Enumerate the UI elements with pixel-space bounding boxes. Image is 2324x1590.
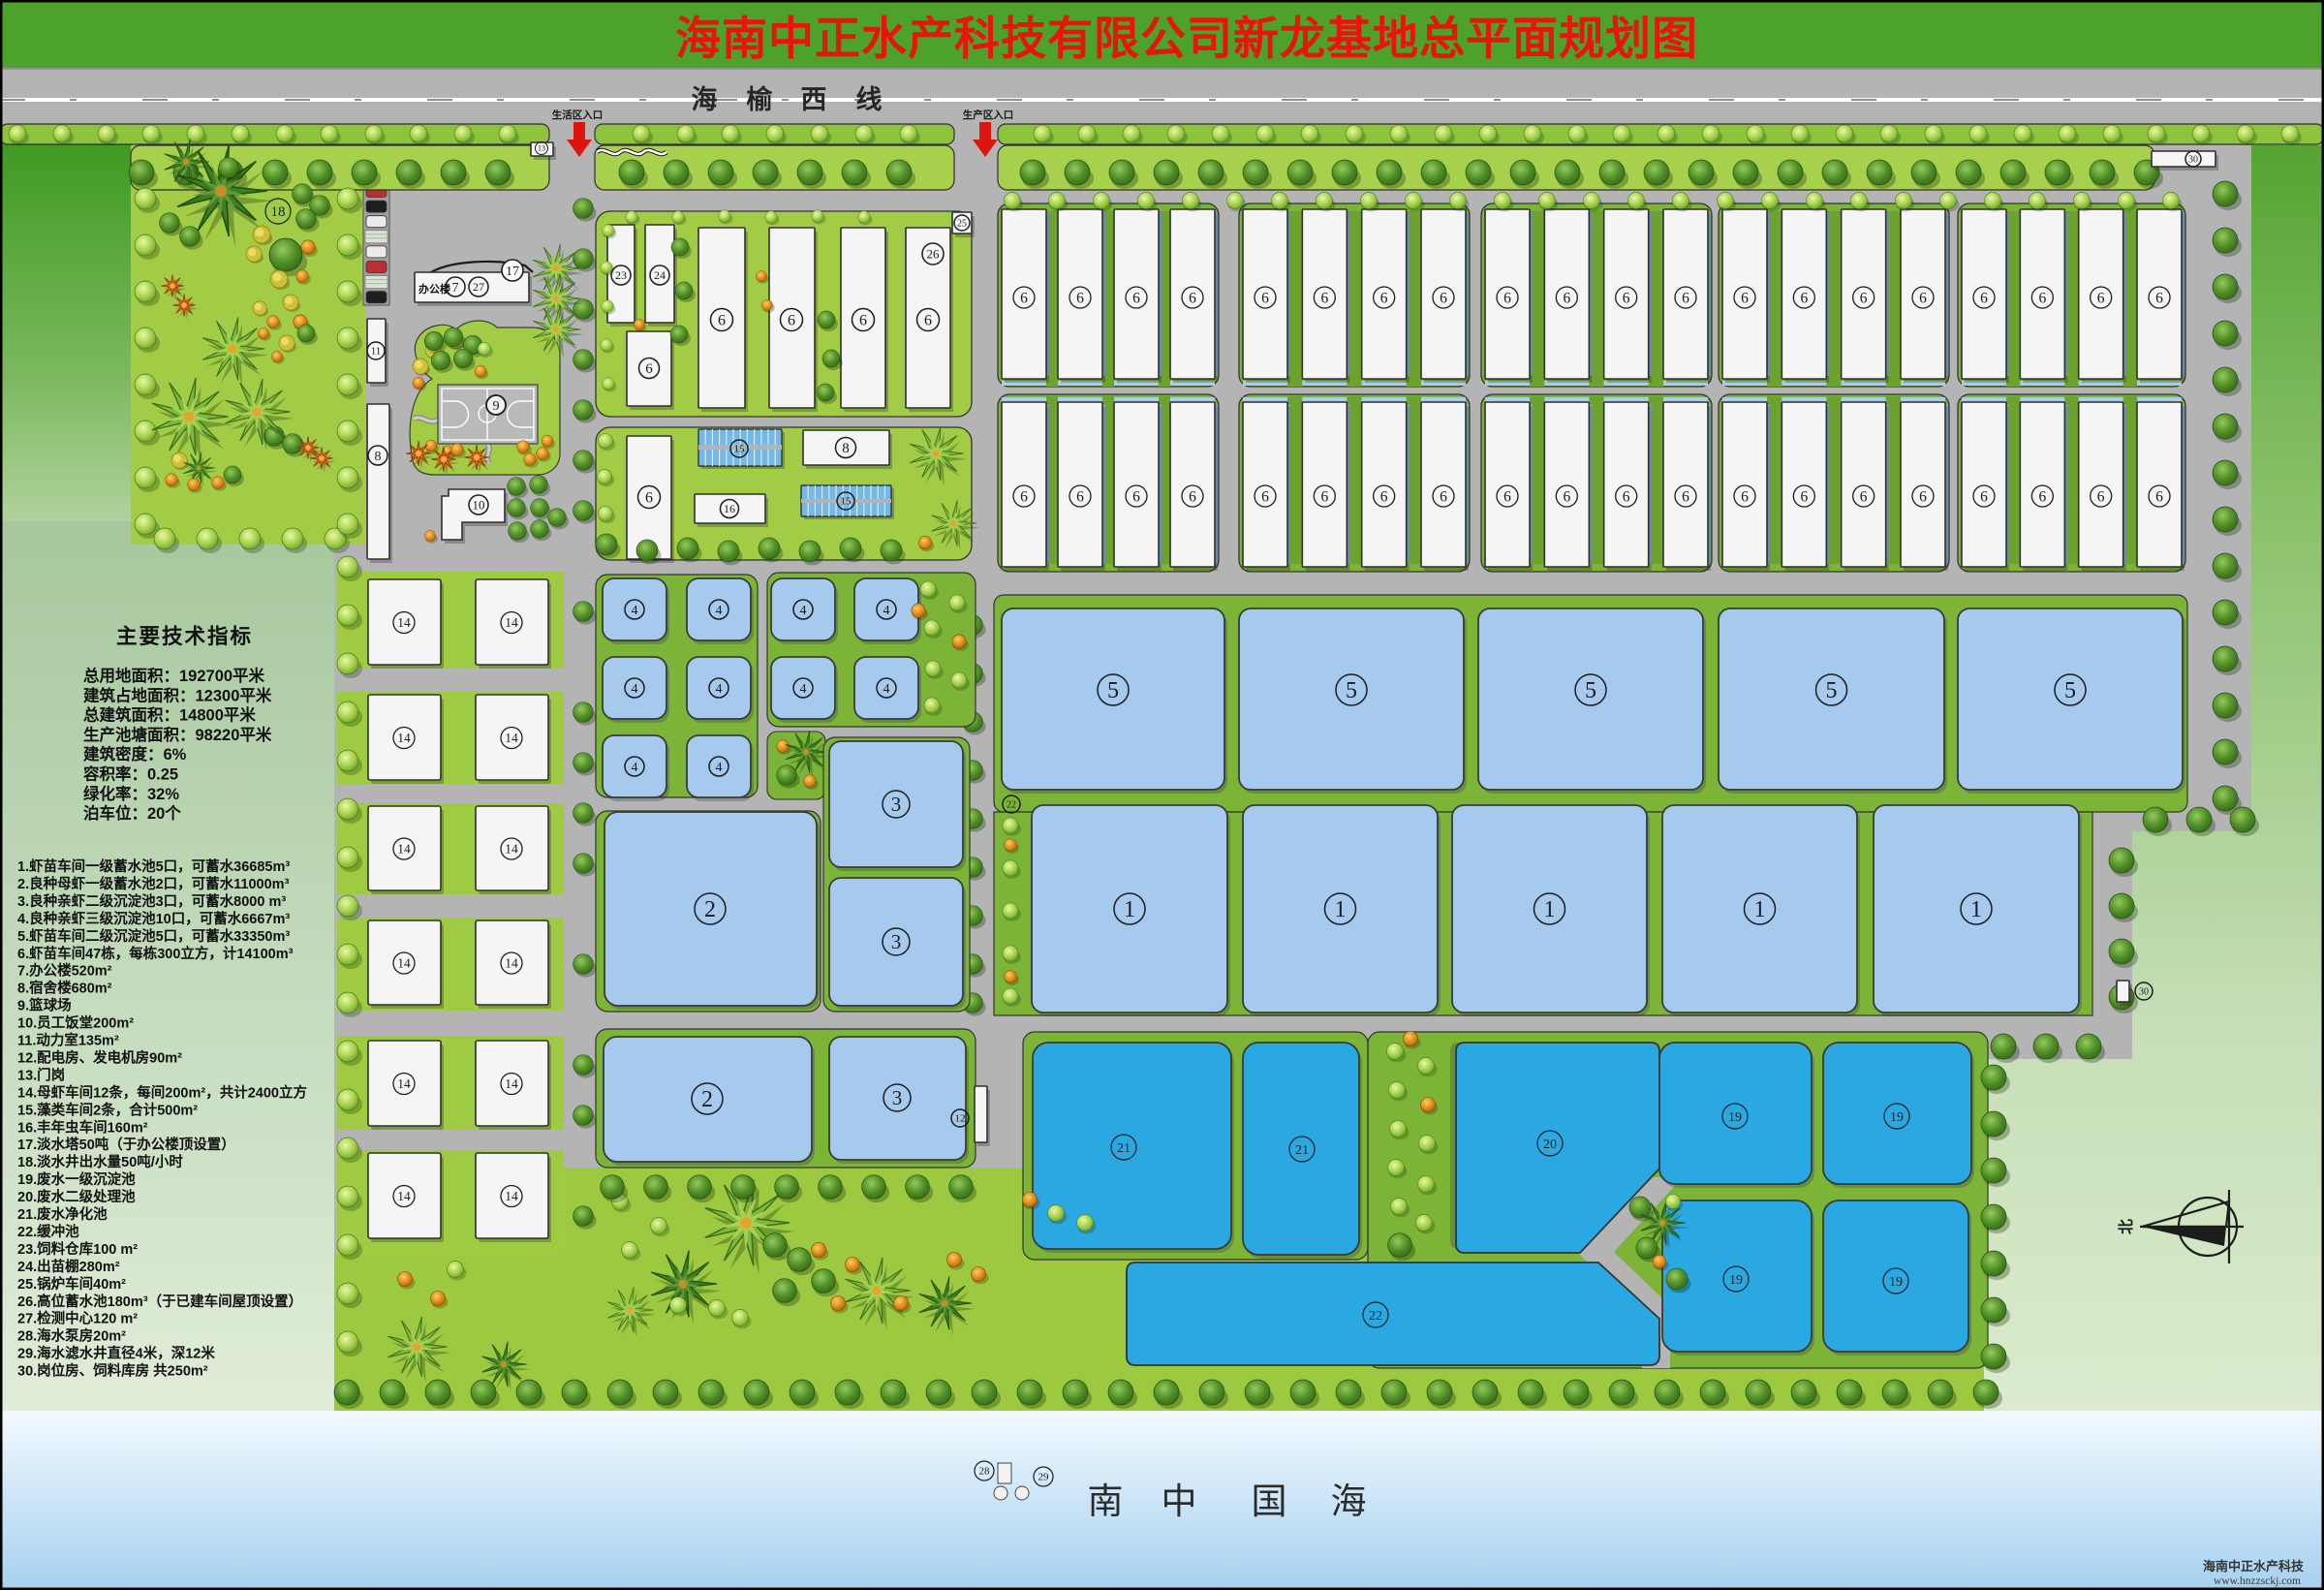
svg-text:23: 23 xyxy=(615,268,627,282)
svg-text:6: 6 xyxy=(1741,488,1749,505)
svg-text:5: 5 xyxy=(1107,678,1119,703)
svg-text:16: 16 xyxy=(724,502,735,515)
svg-text:6: 6 xyxy=(1682,290,1689,306)
svg-text:14: 14 xyxy=(397,615,411,630)
svg-text:5: 5 xyxy=(1585,678,1596,703)
svg-text:6: 6 xyxy=(1189,290,1196,306)
svg-text:14: 14 xyxy=(397,731,411,745)
svg-text:6: 6 xyxy=(1623,290,1630,306)
svg-text:25.锅炉车间40m²: 25.锅炉车间40m² xyxy=(17,1275,126,1293)
svg-text:23.饲料仓库100 m²: 23.饲料仓库100 m² xyxy=(17,1240,138,1258)
svg-text:14: 14 xyxy=(505,731,518,745)
svg-text:生活区入口: 生活区入口 xyxy=(552,109,604,121)
svg-text:6: 6 xyxy=(645,361,653,377)
svg-text:6: 6 xyxy=(1563,488,1570,505)
svg-text:4: 4 xyxy=(632,682,638,697)
svg-text:4: 4 xyxy=(800,604,807,618)
svg-text:2.良种母虾一级蓄水池2口，可蓄水11000m³: 2.良种母虾一级蓄水池2口，可蓄水11000m³ xyxy=(17,875,290,892)
svg-text:1: 1 xyxy=(1754,897,1766,922)
svg-text:5.虾苗车间二级沉淀池5口，可蓄水33350m³: 5.虾苗车间二级沉淀池5口，可蓄水33350m³ xyxy=(17,927,290,945)
svg-text:建筑占地面积：12300平米: 建筑占地面积：12300平米 xyxy=(83,685,272,704)
svg-text:28.海水泵房20m²: 28.海水泵房20m² xyxy=(17,1327,126,1345)
svg-text:6: 6 xyxy=(1440,488,1447,505)
svg-text:15: 15 xyxy=(841,496,852,508)
svg-text:6: 6 xyxy=(1919,290,1927,306)
svg-text:12.配电房、发电机房90m²: 12.配电房、发电机房90m² xyxy=(17,1048,182,1066)
svg-text:国: 国 xyxy=(1252,1482,1287,1522)
svg-text:6: 6 xyxy=(1076,290,1084,306)
svg-text:总建筑面积：14800平米: 总建筑面积：14800平米 xyxy=(83,705,256,725)
svg-text:11: 11 xyxy=(371,346,382,358)
svg-text:5: 5 xyxy=(2064,678,2076,703)
svg-text:6: 6 xyxy=(1076,488,1084,505)
svg-text:3: 3 xyxy=(891,930,902,953)
svg-text:3: 3 xyxy=(891,793,902,816)
svg-text:6: 6 xyxy=(1563,290,1570,306)
svg-text:总用地面积：192700平米: 总用地面积：192700平米 xyxy=(83,666,265,685)
svg-text:11.动力室135m²: 11.动力室135m² xyxy=(17,1032,119,1049)
svg-text:12: 12 xyxy=(955,1113,966,1125)
svg-text:生产池塘面积：98220平米: 生产池塘面积：98220平米 xyxy=(83,725,272,744)
svg-text:www.hnzzsckj.com: www.hnzzsckj.com xyxy=(2214,1575,2301,1587)
svg-text:9.篮球场: 9.篮球场 xyxy=(17,997,72,1014)
svg-text:6: 6 xyxy=(1800,488,1808,505)
svg-text:6: 6 xyxy=(1503,290,1511,306)
svg-text:14: 14 xyxy=(505,956,518,971)
svg-text:17: 17 xyxy=(506,265,519,279)
svg-text:6: 6 xyxy=(1132,290,1140,306)
svg-text:6: 6 xyxy=(1860,488,1868,505)
svg-text:29: 29 xyxy=(1038,1472,1050,1483)
svg-text:13.门岗: 13.门岗 xyxy=(17,1066,65,1083)
svg-text:30.岗位房、饲料库房 共250m²: 30.岗位房、饲料库房 共250m² xyxy=(17,1362,208,1380)
svg-text:6.虾苗车间47栋，每栋300立方，计14100m³: 6.虾苗车间47栋，每栋300立方，计14100m³ xyxy=(17,945,294,962)
svg-text:8: 8 xyxy=(842,441,850,456)
svg-text:30: 30 xyxy=(2188,154,2198,165)
svg-text:6: 6 xyxy=(1623,488,1630,505)
svg-text:19: 19 xyxy=(1728,1110,1742,1125)
svg-text:6: 6 xyxy=(1380,488,1388,505)
svg-text:10: 10 xyxy=(473,497,485,512)
svg-text:17.淡水塔50吨（于办公楼顶设置）: 17.淡水塔50吨（于办公楼顶设置） xyxy=(17,1136,235,1153)
svg-text:海南中正水产科技: 海南中正水产科技 xyxy=(2203,1559,2305,1574)
svg-text:6: 6 xyxy=(645,489,653,506)
svg-text:南: 南 xyxy=(1088,1482,1124,1522)
svg-text:27: 27 xyxy=(473,280,484,294)
svg-text:18.淡水井出水量50吨/小时: 18.淡水井出水量50吨/小时 xyxy=(17,1153,183,1170)
svg-text:海: 海 xyxy=(692,85,718,114)
svg-text:14.母虾车间12条，每间200m²，共计2400立方: 14.母虾车间12条，每间200m²，共计2400立方 xyxy=(17,1083,307,1101)
svg-text:6: 6 xyxy=(2038,290,2046,306)
svg-text:21: 21 xyxy=(1117,1141,1131,1156)
svg-text:中: 中 xyxy=(1162,1482,1197,1522)
svg-text:25: 25 xyxy=(957,218,967,229)
svg-text:北: 北 xyxy=(2118,1219,2135,1234)
svg-text:主要技术指标: 主要技术指标 xyxy=(116,624,253,648)
svg-text:6: 6 xyxy=(1261,290,1269,306)
svg-text:18: 18 xyxy=(271,204,286,220)
svg-text:6: 6 xyxy=(2155,488,2163,505)
svg-text:22.缓冲池: 22.缓冲池 xyxy=(17,1223,79,1240)
svg-text:6: 6 xyxy=(1189,488,1196,505)
svg-text:21: 21 xyxy=(1295,1143,1309,1158)
svg-text:6: 6 xyxy=(718,312,726,328)
svg-text:绿化率：32%: 绿化率：32% xyxy=(83,784,179,803)
svg-text:24: 24 xyxy=(654,268,666,282)
svg-text:5: 5 xyxy=(1346,678,1357,703)
svg-text:6: 6 xyxy=(1320,488,1328,505)
svg-text:4: 4 xyxy=(716,604,723,618)
svg-text:4: 4 xyxy=(800,682,807,697)
svg-text:2: 2 xyxy=(704,897,716,922)
svg-text:4: 4 xyxy=(632,604,638,618)
svg-text:1: 1 xyxy=(1544,897,1556,922)
svg-text:6: 6 xyxy=(2155,290,2163,306)
svg-text:海南中正水产科技有限公司新龙基地总平面规划图: 海南中正水产科技有限公司新龙基地总平面规划图 xyxy=(675,13,1698,64)
svg-text:29.海水滤水井直径4米，深12米: 29.海水滤水井直径4米，深12米 xyxy=(17,1345,215,1362)
svg-text:13: 13 xyxy=(538,144,545,153)
svg-text:1: 1 xyxy=(1970,897,1982,922)
svg-text:4: 4 xyxy=(883,604,890,618)
svg-text:6: 6 xyxy=(1980,488,1988,505)
svg-text:5: 5 xyxy=(1826,678,1838,703)
svg-text:6: 6 xyxy=(1919,488,1927,505)
svg-text:海: 海 xyxy=(1331,1482,1367,1522)
svg-text:6: 6 xyxy=(1020,488,1028,505)
svg-text:6: 6 xyxy=(1020,290,1028,306)
svg-text:6: 6 xyxy=(1682,488,1689,505)
svg-text:6: 6 xyxy=(2038,488,2046,505)
svg-text:4: 4 xyxy=(716,682,723,697)
svg-text:28: 28 xyxy=(979,1466,991,1478)
svg-text:22: 22 xyxy=(1369,1309,1382,1324)
svg-text:24.出苗棚280m²: 24.出苗棚280m² xyxy=(17,1258,120,1275)
svg-text:20: 20 xyxy=(1543,1138,1557,1152)
svg-text:15.藻类车间2条，合计500m²: 15.藻类车间2条，合计500m² xyxy=(17,1101,198,1118)
svg-text:19: 19 xyxy=(1889,1275,1903,1290)
svg-text:6: 6 xyxy=(2097,290,2105,306)
svg-text:14: 14 xyxy=(397,1076,411,1091)
svg-text:1.虾苗车间一级蓄水池5口，可蓄水36685m³: 1.虾苗车间一级蓄水池5口，可蓄水36685m³ xyxy=(17,857,290,875)
svg-text:14: 14 xyxy=(397,1189,411,1203)
svg-text:3.良种亲虾二级沉淀池3口，可蓄水8000 m³: 3.良种亲虾二级沉淀池3口，可蓄水8000 m³ xyxy=(17,892,286,910)
svg-text:榆: 榆 xyxy=(747,84,774,114)
svg-text:6: 6 xyxy=(1380,290,1388,306)
svg-text:1: 1 xyxy=(1335,897,1347,922)
svg-text:西: 西 xyxy=(801,85,827,114)
svg-text:19: 19 xyxy=(1729,1273,1743,1288)
svg-text:14: 14 xyxy=(397,842,411,857)
svg-text:4.良种亲虾三级沉淀池10口，可蓄水6667m³: 4.良种亲虾三级沉淀池10口，可蓄水6667m³ xyxy=(17,910,290,927)
svg-text:建筑密度：6%: 建筑密度：6% xyxy=(83,744,187,764)
svg-text:19.废水一级沉淀池: 19.废水一级沉淀池 xyxy=(17,1170,136,1188)
svg-text:21.废水净化池: 21.废水净化池 xyxy=(17,1205,108,1223)
svg-text:26.高位蓄水池180m³（于已建车间屋顶设置）: 26.高位蓄水池180m³（于已建车间屋顶设置） xyxy=(17,1293,302,1310)
svg-text:20.废水二级处理池: 20.废水二级处理池 xyxy=(17,1188,136,1205)
svg-text:7.办公楼520m²: 7.办公楼520m² xyxy=(17,962,112,980)
svg-text:30: 30 xyxy=(2139,986,2149,997)
svg-text:6: 6 xyxy=(1860,290,1868,306)
svg-text:15: 15 xyxy=(734,444,746,455)
svg-text:9: 9 xyxy=(493,399,500,414)
svg-text:线: 线 xyxy=(856,85,883,114)
svg-text:16.丰年虫车间160m²: 16.丰年虫车间160m² xyxy=(17,1118,148,1136)
svg-text:14: 14 xyxy=(397,956,411,971)
svg-text:6: 6 xyxy=(2097,488,2105,505)
svg-text:2: 2 xyxy=(701,1087,713,1112)
svg-text:容积率：0.25: 容积率：0.25 xyxy=(83,764,178,784)
svg-text:10.员工饭堂200m²: 10.员工饭堂200m² xyxy=(17,1014,134,1032)
svg-text:6: 6 xyxy=(1980,290,1988,306)
svg-text:14: 14 xyxy=(505,842,518,857)
svg-text:7: 7 xyxy=(452,281,459,296)
svg-text:4: 4 xyxy=(716,761,723,775)
svg-text:生产区入口: 生产区入口 xyxy=(963,109,1014,121)
svg-text:8.宿舍楼680m²: 8.宿舍楼680m² xyxy=(17,980,112,997)
svg-text:6: 6 xyxy=(1261,488,1269,505)
svg-text:22: 22 xyxy=(1007,799,1016,810)
svg-text:6: 6 xyxy=(1741,290,1749,306)
svg-text:4: 4 xyxy=(883,682,890,697)
svg-text:14: 14 xyxy=(505,1076,518,1091)
svg-text:27.检测中心120 m²: 27.检测中心120 m² xyxy=(17,1310,138,1327)
svg-text:6: 6 xyxy=(788,312,795,328)
svg-text:26: 26 xyxy=(927,246,941,261)
svg-text:6: 6 xyxy=(1320,290,1328,306)
svg-text:14: 14 xyxy=(505,1189,518,1203)
svg-text:14: 14 xyxy=(505,615,518,630)
svg-text:19: 19 xyxy=(1890,1110,1904,1125)
svg-text:8: 8 xyxy=(375,450,382,464)
svg-text:6: 6 xyxy=(1440,290,1447,306)
svg-text:6: 6 xyxy=(1800,290,1808,306)
svg-text:泊车位：20个: 泊车位：20个 xyxy=(83,803,181,823)
svg-text:1: 1 xyxy=(1124,897,1135,922)
svg-text:6: 6 xyxy=(859,312,867,328)
svg-text:6: 6 xyxy=(1503,488,1511,505)
svg-text:4: 4 xyxy=(632,761,638,775)
svg-text:3: 3 xyxy=(892,1086,903,1109)
svg-text:6: 6 xyxy=(924,312,932,328)
svg-text:6: 6 xyxy=(1132,488,1140,505)
